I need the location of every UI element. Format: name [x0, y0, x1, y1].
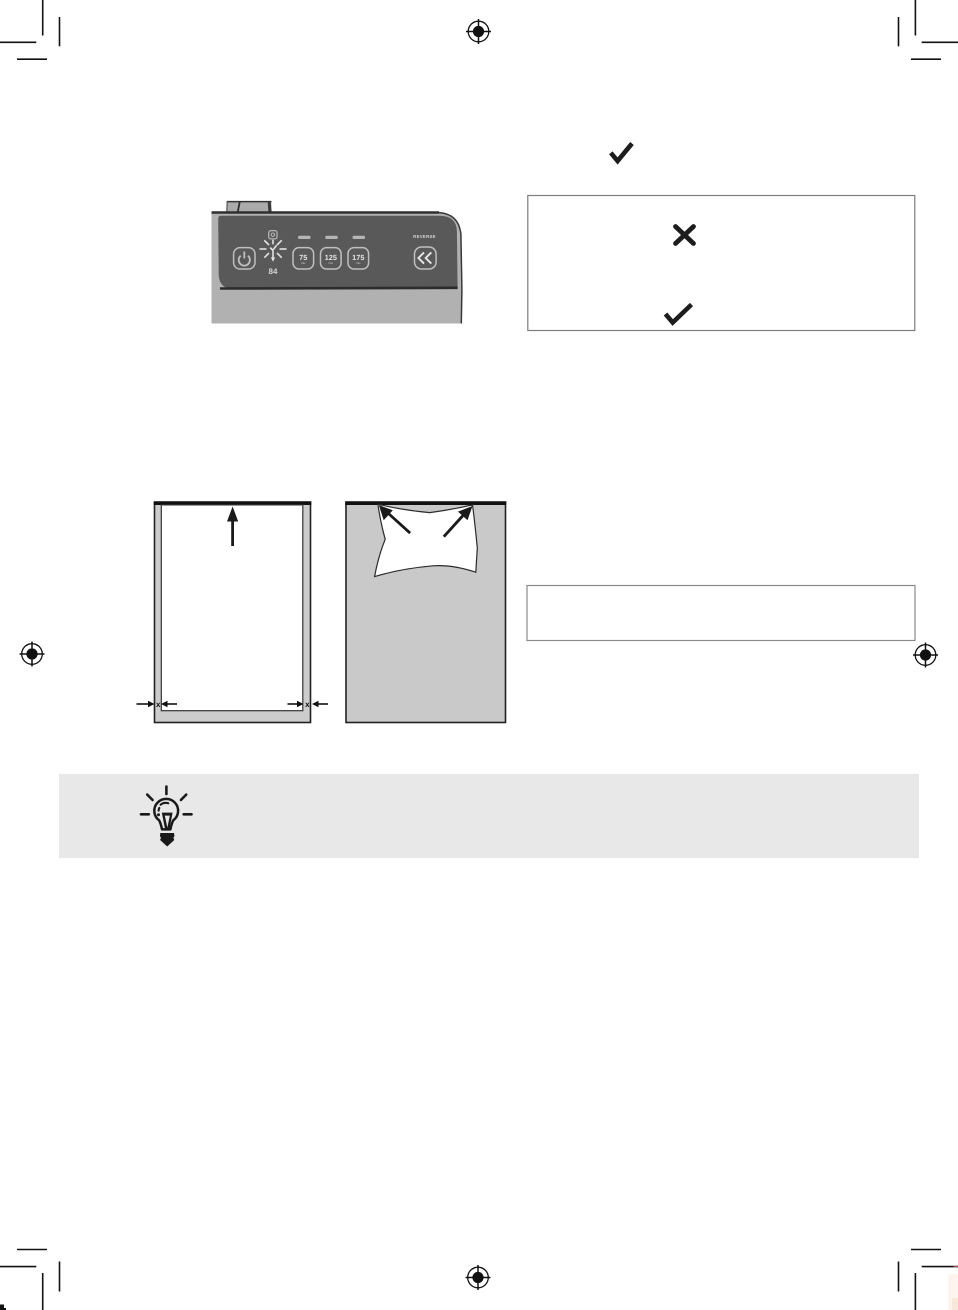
svg-text:x: x — [305, 700, 310, 709]
svg-text:mic: mic — [356, 261, 361, 265]
svg-text:REVERSE: REVERSE — [413, 234, 436, 239]
svg-text:mic: mic — [328, 261, 333, 265]
svg-text:x: x — [156, 700, 161, 709]
svg-text:84: 84 — [269, 267, 278, 276]
svg-text:mic: mic — [301, 261, 306, 265]
